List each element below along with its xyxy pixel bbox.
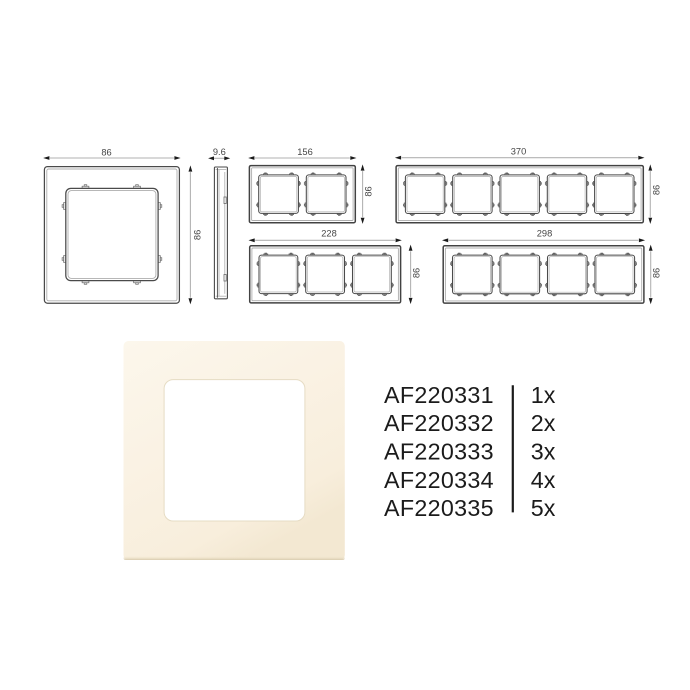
svg-text:86: 86 — [193, 230, 203, 240]
svg-text:86: 86 — [651, 185, 661, 195]
svg-text:AF220333: AF220333 — [384, 439, 494, 465]
svg-text:3x: 3x — [531, 439, 556, 465]
svg-text:1x: 1x — [531, 382, 556, 408]
svg-text:298: 298 — [537, 228, 553, 238]
svg-text:86: 86 — [652, 268, 662, 278]
svg-text:370: 370 — [511, 147, 527, 157]
svg-text:AF220331: AF220331 — [384, 382, 494, 408]
svg-text:5x: 5x — [531, 495, 556, 521]
svg-text:AF220332: AF220332 — [384, 410, 494, 436]
svg-text:156: 156 — [297, 147, 313, 157]
svg-text:86: 86 — [412, 268, 422, 278]
svg-text:AF220335: AF220335 — [384, 495, 494, 521]
svg-text:9.6: 9.6 — [213, 147, 226, 157]
svg-text:AF220334: AF220334 — [384, 467, 494, 493]
svg-text:228: 228 — [321, 228, 337, 238]
svg-text:4x: 4x — [531, 467, 556, 493]
svg-text:2x: 2x — [531, 410, 556, 436]
svg-text:86: 86 — [101, 147, 111, 157]
svg-text:86: 86 — [364, 186, 374, 196]
